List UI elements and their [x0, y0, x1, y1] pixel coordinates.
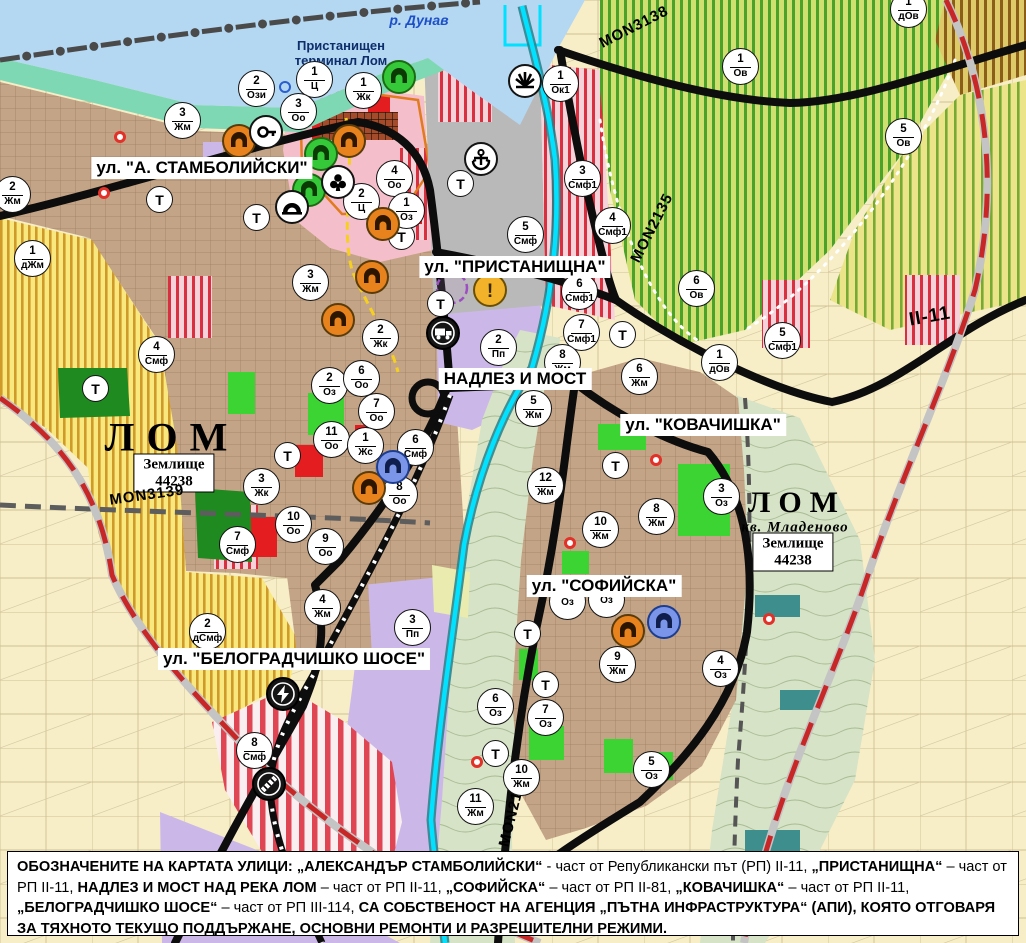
zone-marker: 7Оо	[358, 393, 395, 430]
zone-code: Ц	[358, 204, 365, 214]
zone-number: 10	[515, 765, 528, 777]
legend-text-segment: – част от РП II-11,	[784, 880, 909, 896]
zone-marker: 8Смф	[236, 732, 273, 769]
zone-number: 6	[412, 435, 418, 447]
zone-code: Оо	[325, 442, 339, 452]
legend-text-segment: – част от РП III-114,	[217, 900, 358, 916]
zone-number: 1	[311, 67, 317, 79]
zone-number: 8	[251, 738, 257, 750]
zone-code: Оз	[600, 596, 613, 606]
zone-code: Жм	[592, 532, 608, 542]
zone-code: Жк	[356, 93, 370, 103]
zone-code: Оз	[539, 720, 552, 730]
zone-code: Жм	[467, 809, 483, 819]
legend-text-segment: – част от РП II-81,	[545, 880, 675, 896]
zone-code: Ози	[247, 91, 266, 101]
zone-number: 11	[325, 427, 337, 439]
zone-code: Смф	[243, 753, 266, 763]
zone-code: Жк	[254, 489, 268, 499]
zone-marker: 5Жм	[515, 390, 552, 427]
zone-number: 3	[307, 270, 313, 282]
truck-icon	[426, 316, 460, 350]
zone-code: Жм	[174, 123, 190, 133]
zone-number: 7	[542, 705, 548, 717]
zone-number: 2	[253, 76, 259, 88]
zone-number: 10	[594, 517, 607, 529]
zone-code: Ц	[311, 82, 318, 92]
zone-number: 5	[900, 124, 906, 136]
zone-marker: 6Жм	[621, 358, 658, 395]
zone-number: 4	[717, 656, 723, 668]
zone-code: Жс	[358, 448, 373, 458]
zone-number: 8	[396, 482, 402, 494]
legend-text-segment: ОБОЗНАЧЕНИТЕ НА КАРТАТА УЛИЦИ: „АЛЕКСАНД…	[17, 859, 542, 875]
zone-code: Оо	[388, 181, 402, 191]
zone-number: 5	[779, 328, 785, 340]
red-dot-marker	[564, 537, 576, 549]
zone-number: 1	[403, 198, 409, 210]
legend-text-segment: „БЕЛОГРАДЧИШКО ШОСЕ“	[17, 900, 217, 916]
red-dot-marker	[763, 613, 775, 625]
transformer-marker: Т	[514, 620, 541, 647]
zone-code: Пп	[492, 350, 505, 360]
zone-number: 6	[693, 276, 699, 288]
legend-text-segment: „СОФИЙСКА“	[446, 880, 546, 896]
zone-number: 2	[377, 325, 383, 337]
zone-number: 8	[653, 504, 659, 516]
zone-number: 4	[391, 166, 397, 178]
zone-code: Оз	[715, 499, 728, 509]
zone-number: 1	[362, 433, 368, 445]
red-dot-marker	[98, 187, 110, 199]
monument-blue-icon	[376, 450, 410, 484]
zone-marker: 6Оо	[343, 360, 380, 397]
zone-number: 4	[319, 595, 325, 607]
zone-code: дОв	[709, 365, 729, 375]
zone-number: 4	[609, 213, 615, 225]
zone-number: 3	[718, 484, 724, 496]
zone-marker: 6Ов	[678, 270, 715, 307]
landplot-box: Землище44238	[752, 533, 833, 572]
zone-marker: 1Ок1	[542, 65, 579, 102]
zone-code: Пп	[406, 630, 419, 640]
zone-number: 2	[358, 189, 364, 201]
transformer-marker: Т	[447, 170, 474, 197]
zone-marker: 12Жм	[527, 467, 564, 504]
zone-code: Жм	[631, 379, 647, 389]
zone-number: 1	[360, 78, 366, 90]
zone-marker: 6Оз	[477, 688, 514, 725]
zone-code: дОв	[898, 12, 918, 22]
road-code-label: MON3138	[597, 2, 672, 51]
zone-number: 1	[557, 71, 563, 83]
transformer-marker: Т	[482, 740, 509, 767]
zone-marker: 3Жм	[292, 264, 329, 301]
zone-marker: 4Оз	[702, 650, 739, 687]
zone-marker: 2Ози	[238, 70, 275, 107]
zone-number: 7	[234, 532, 240, 544]
zone-marker: 4Жм	[304, 589, 341, 626]
landplot-label: Землище	[143, 457, 204, 473]
zone-marker: 4Смф	[138, 336, 175, 373]
zone-marker: 7Смф	[219, 526, 256, 563]
zone-number: 7	[373, 399, 379, 411]
sun-icon	[508, 64, 542, 98]
zone-number: 6	[358, 366, 364, 378]
zone-marker: 5Оз	[633, 751, 670, 788]
zone-number: 4	[153, 342, 159, 354]
legend-text-segment: – част от РП II-11,	[317, 880, 446, 896]
zone-marker: 3Смф1	[564, 160, 601, 197]
zone-number: 3	[579, 166, 585, 178]
zone-code: Жм	[537, 488, 553, 498]
zone-code: Смф	[226, 547, 249, 557]
zone-number: 11	[469, 794, 481, 806]
zone-marker: 4Смф1	[594, 207, 631, 244]
transformer-marker: Т	[532, 671, 559, 698]
street-label: ул. "А. СТАМБОЛИЙСКИ"	[91, 157, 312, 179]
zone-code: Оо	[355, 381, 369, 391]
zone-code: Жк	[373, 340, 387, 350]
zone-code: Смф	[514, 237, 537, 247]
zone-marker: 1дЖм	[14, 240, 51, 277]
zone-marker: 3Оо	[280, 93, 317, 130]
lightning-icon	[266, 677, 300, 711]
zone-code: Смф1	[568, 181, 597, 191]
tunnel-icon	[275, 190, 309, 224]
club-icon	[321, 165, 355, 199]
landplot-label: Землище	[762, 536, 823, 552]
zone-marker: 10Жм	[582, 511, 619, 548]
street-label: ул. "БЕЛОГРАДЧИШКО ШОСЕ"	[158, 648, 430, 670]
zone-marker: 11Жм	[457, 788, 494, 825]
river-label: р. Дунав	[389, 12, 448, 28]
zone-code: Оо	[370, 414, 384, 424]
street-label: ул. "КОВАЧИШКА"	[620, 414, 786, 436]
zone-code: Жм	[302, 285, 318, 295]
transformer-marker: Т	[82, 375, 109, 402]
zone-code: Смф1	[567, 335, 596, 345]
legend-text-segment: „КОВАЧИШКА“	[675, 880, 784, 896]
zone-marker: 9Оо	[307, 528, 344, 565]
zone-number: 7	[578, 320, 584, 332]
zone-marker: 8Жм	[638, 498, 675, 535]
zone-code: Ов	[690, 291, 704, 301]
zone-code: Смф1	[565, 294, 594, 304]
zone-marker: 3Жм	[164, 102, 201, 139]
zone-marker: 10Оо	[275, 506, 312, 543]
transformer-marker: Т	[274, 442, 301, 469]
railway-cross-icon	[252, 767, 286, 801]
zone-number: 5	[530, 396, 536, 408]
zone-marker: 1дОв	[890, 0, 927, 28]
zone-number: 1	[29, 246, 35, 258]
zone-code: дСмф	[193, 634, 223, 644]
zone-marker: 5Смф1	[764, 322, 801, 359]
zone-marker: 3Пп	[394, 609, 431, 646]
zone-code: Оо	[287, 527, 301, 537]
zone-marker: 6Смф1	[561, 273, 598, 310]
red-dot-marker	[650, 454, 662, 466]
zone-marker: 2Жк	[362, 319, 399, 356]
zone-number: 1	[737, 54, 743, 66]
zone-marker: 3Оз	[703, 478, 740, 515]
zone-number: 12	[539, 473, 552, 485]
zone-code: Жм	[513, 780, 529, 790]
zone-marker: 1Ов	[722, 48, 759, 85]
zone-code: Оз	[714, 671, 727, 681]
zone-code: Оо	[393, 497, 407, 507]
monument-blue-icon	[647, 605, 681, 639]
zone-code: Смф1	[598, 228, 627, 238]
zone-marker: 5Смф	[507, 216, 544, 253]
zone-number: 3	[179, 108, 185, 120]
transformer-marker: Т	[146, 186, 173, 213]
zoning-map: р. Дунав Пристанищен терминал Лом 2Ози1Ц…	[0, 0, 1026, 943]
zone-code: Оз	[645, 772, 658, 782]
zone-number: 5	[648, 757, 654, 769]
zone-code: Ок1	[551, 86, 569, 96]
street-label: ул. "СОФИЙСКА"	[527, 575, 682, 597]
monument-green-icon	[382, 60, 416, 94]
road-code-label: MON3139	[108, 481, 185, 508]
landplot-number: 44238	[774, 552, 812, 568]
anchor-icon	[464, 142, 498, 176]
zone-code: Оо	[292, 114, 306, 124]
monument-orange-icon	[321, 303, 355, 337]
key-icon	[249, 115, 283, 149]
zone-number: 3	[258, 474, 264, 486]
red-dot-marker	[471, 756, 483, 768]
zone-number: 2	[9, 182, 15, 194]
zone-marker: 9Жм	[599, 646, 636, 683]
zone-marker: 2Жм	[0, 176, 31, 213]
zone-number: 2	[204, 619, 210, 631]
zone-number: 1	[716, 350, 722, 362]
transformer-marker: Т	[427, 290, 454, 317]
road-code-label: MON2135	[627, 191, 676, 266]
zone-code: Жм	[314, 610, 330, 620]
zone-code: Жм	[4, 197, 20, 207]
zone-code: Оо	[319, 549, 333, 559]
transformer-marker: Т	[243, 204, 270, 231]
legend-text-segment: „ПРИСТАНИЩНА“	[811, 859, 942, 875]
transformer-marker: Т	[602, 452, 629, 479]
port-terminal-line1: Пристанищен	[297, 38, 385, 53]
zone-number: 6	[636, 364, 642, 376]
zone-code: Оз	[561, 598, 574, 608]
street-label: ул. "ПРИСТАНИЩНА"	[419, 256, 610, 278]
zone-marker: 1дОв	[701, 344, 738, 381]
area-label: ЛОМ	[748, 486, 846, 520]
transformer-marker: Т	[609, 321, 636, 348]
legend-text-segment: - част от Републикански път (РП) II-11,	[542, 859, 811, 875]
zone-marker: 2Оз	[311, 367, 348, 404]
zone-number: 8	[559, 350, 565, 362]
warning-icon: !	[473, 273, 507, 307]
svg-text:!: !	[487, 281, 493, 302]
zone-code: Оз	[489, 709, 502, 719]
map-legend-note: ОБОЗНАЧЕНИТЕ НА КАРТАТА УЛИЦИ: „АЛЕКСАНД…	[7, 851, 1019, 936]
zone-code: Оз	[323, 388, 336, 398]
zone-marker: 3Жк	[243, 468, 280, 505]
zone-marker: 10Жм	[503, 759, 540, 796]
zone-number: 1	[905, 0, 911, 9]
red-dot-marker	[114, 131, 126, 143]
zone-code: Оз	[400, 213, 413, 223]
zone-code: Ов	[734, 69, 748, 79]
zone-marker: 11Оо	[313, 421, 350, 458]
zone-number: 6	[576, 279, 582, 291]
zone-number: 10	[287, 512, 300, 524]
zone-code: Жм	[525, 411, 541, 421]
street-label: НАДЛЕЗ И МОСТ	[439, 368, 592, 390]
zone-number: 2	[326, 373, 332, 385]
zone-marker: 7Оз	[527, 699, 564, 736]
zone-marker: 2дСмф	[189, 613, 226, 650]
zone-number: 6	[492, 694, 498, 706]
monument-orange-icon	[611, 614, 645, 648]
zone-marker: 5Ов	[885, 118, 922, 155]
legend-text-segment: НАДЛЕЗ И МОСТ НАД РЕКА ЛОМ	[78, 880, 317, 896]
zone-code: Смф	[145, 357, 168, 367]
zone-code: Ов	[897, 139, 911, 149]
zone-code: Смф1	[768, 343, 797, 353]
zone-number: 9	[322, 534, 328, 546]
map-overlay: р. Дунав Пристанищен терминал Лом 2Ози1Ц…	[0, 0, 1026, 943]
zone-number: 2	[495, 335, 501, 347]
zone-marker: 2Пп	[480, 329, 517, 366]
zone-number: 3	[409, 615, 415, 627]
blue-ring-marker	[279, 81, 291, 93]
zone-code: Жм	[648, 519, 664, 529]
zone-code: Жм	[609, 667, 625, 677]
road-code-label: II-11	[907, 303, 952, 332]
zone-marker: 1Жк	[345, 72, 382, 109]
zone-number: 5	[522, 222, 528, 234]
zone-number: 3	[295, 99, 301, 111]
monument-orange-icon	[355, 260, 389, 294]
monument-orange-icon	[366, 207, 400, 241]
zone-code: дЖм	[21, 261, 44, 271]
zone-number: 9	[614, 652, 620, 664]
